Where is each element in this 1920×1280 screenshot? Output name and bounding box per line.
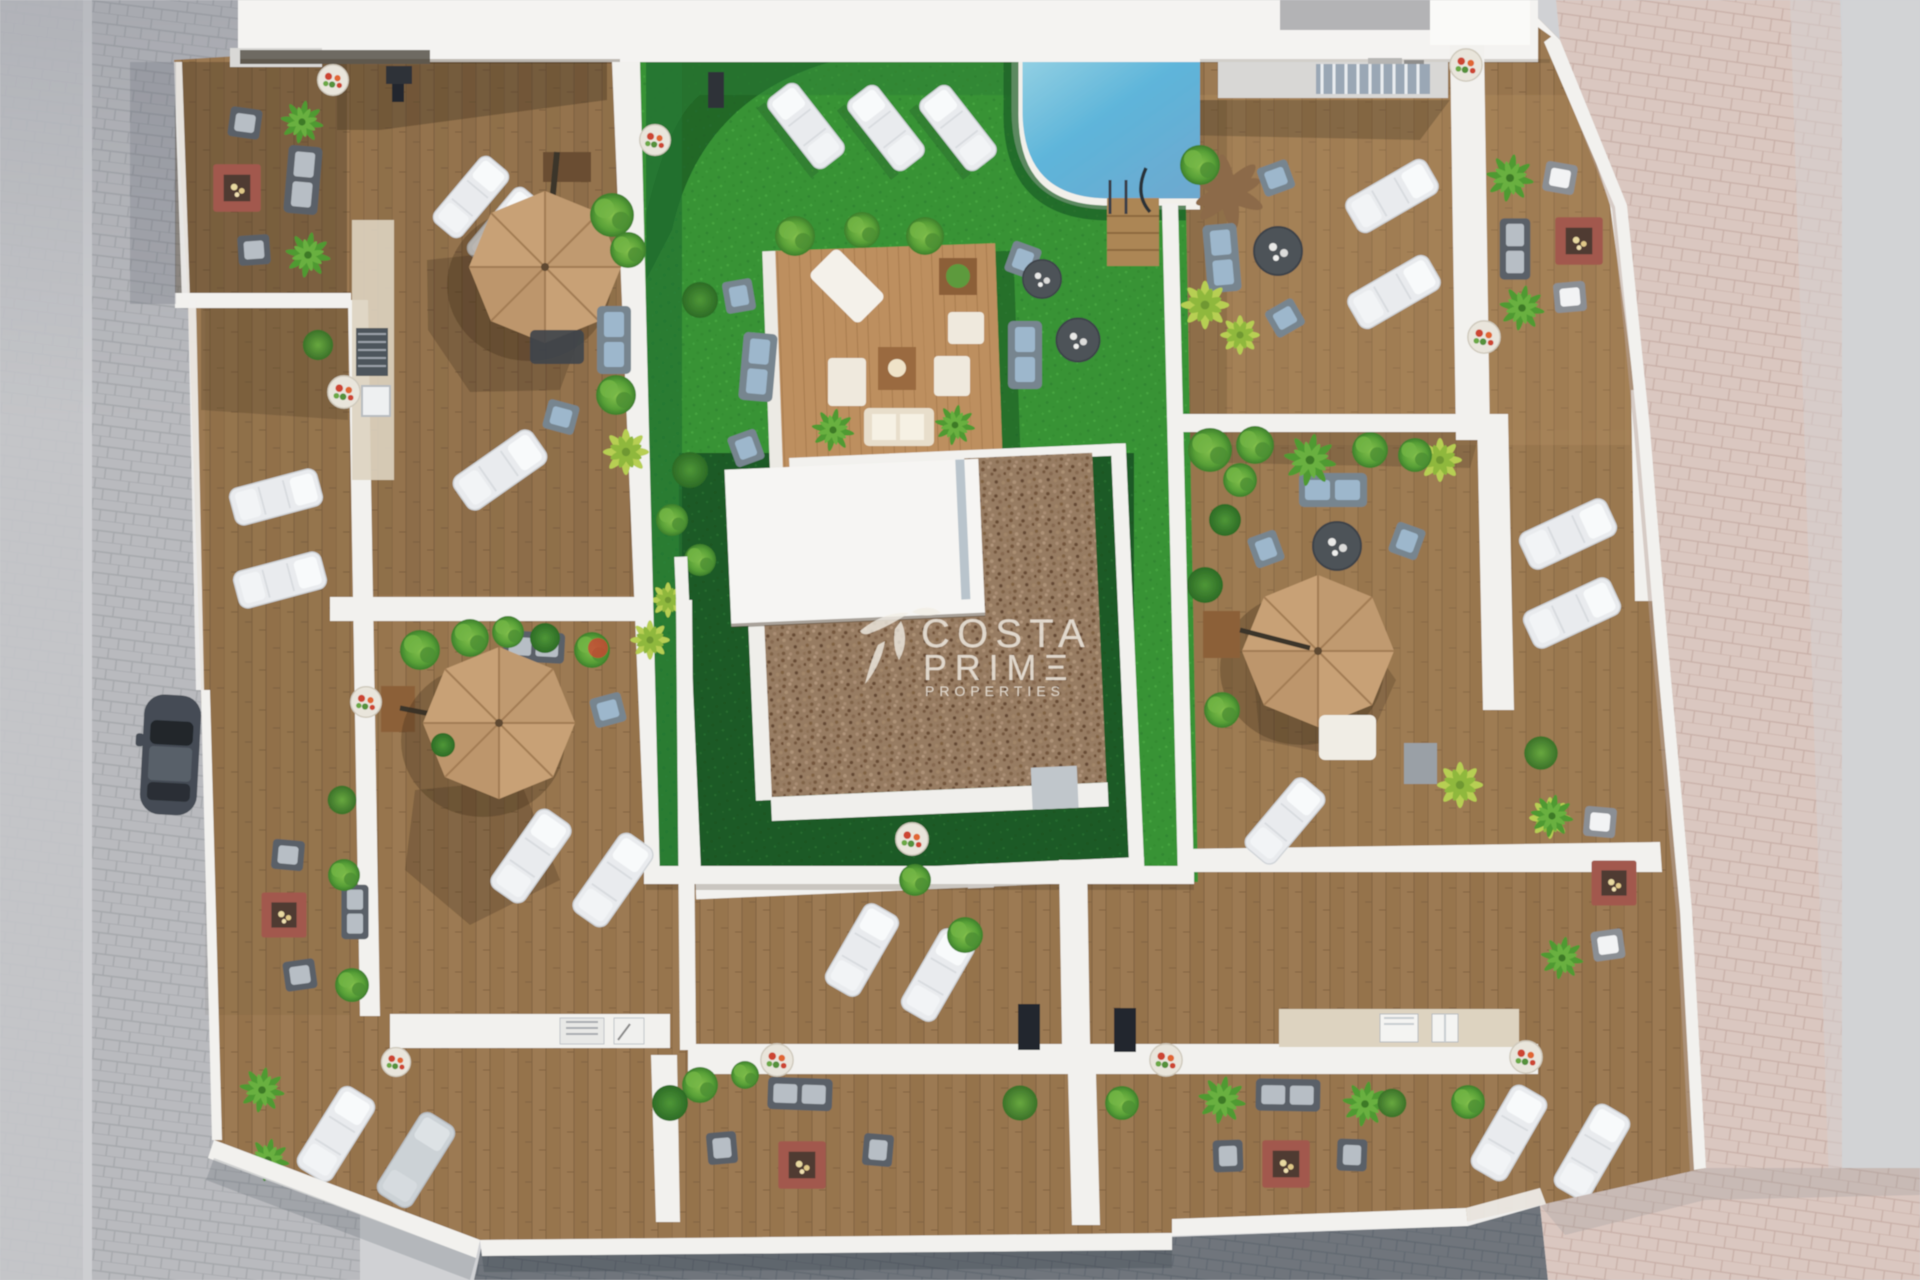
svg-text:PROPERTIES: PROPERTIES (925, 683, 1065, 699)
svg-text:PRIMΞ: PRIMΞ (923, 647, 1075, 688)
